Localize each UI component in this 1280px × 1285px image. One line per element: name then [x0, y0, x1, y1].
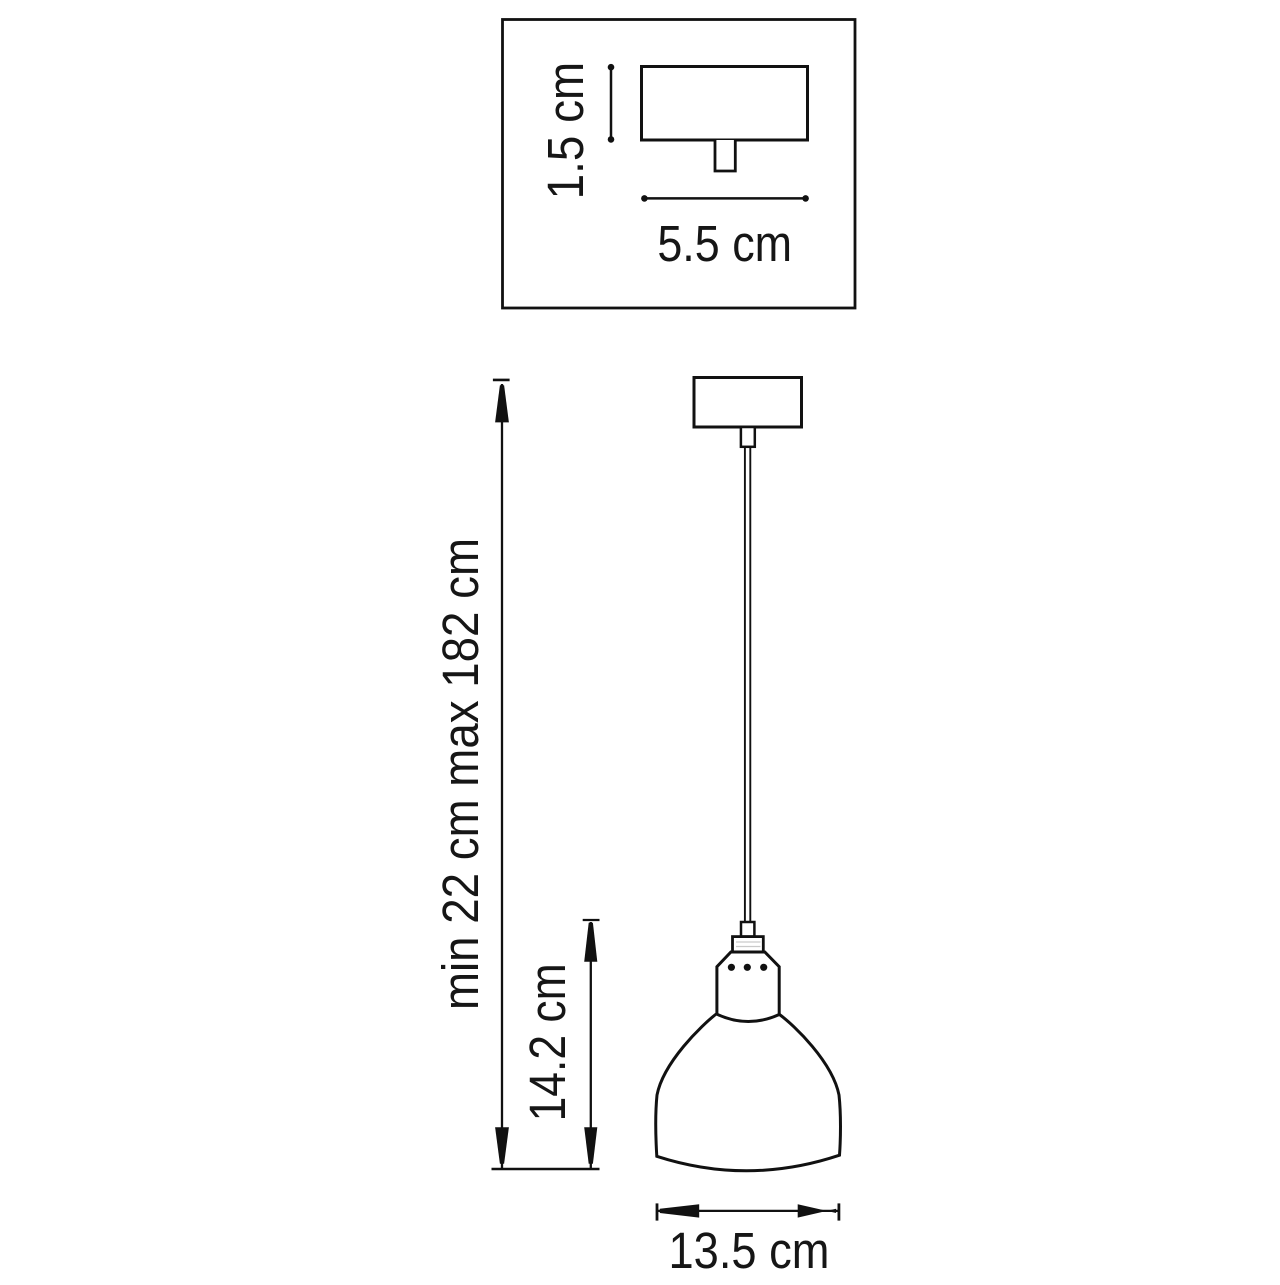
svg-text:14.2 cm: 14.2 cm — [519, 963, 576, 1121]
svg-text:5.5 cm: 5.5 cm — [657, 215, 792, 272]
svg-text:min 22 cm max 182 cm: min 22 cm max 182 cm — [432, 538, 489, 1010]
svg-text:1.5 cm: 1.5 cm — [537, 62, 594, 200]
svg-text:13.5 cm: 13.5 cm — [669, 1222, 830, 1279]
